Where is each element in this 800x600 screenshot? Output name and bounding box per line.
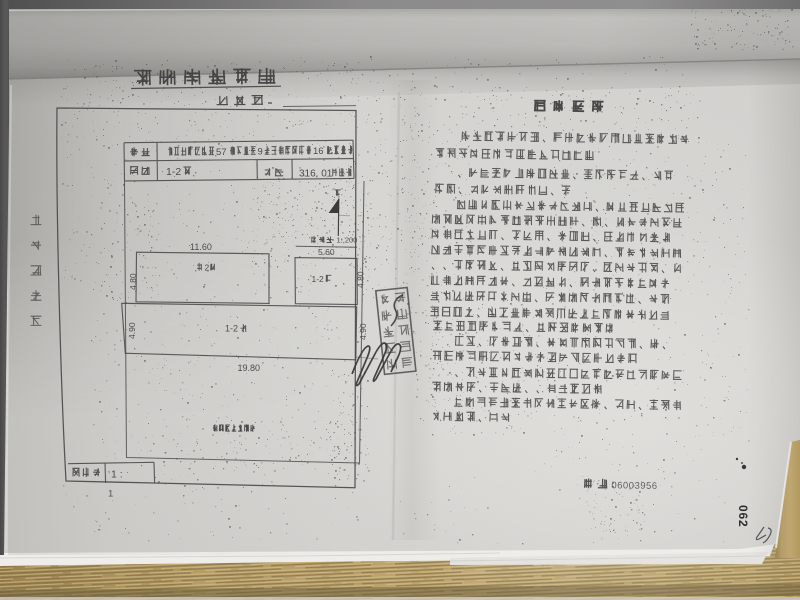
svg-text:11.60: 11.60 [190, 242, 212, 252]
svg-text:19.80: 19.80 [238, 363, 261, 373]
svg-text:4.80: 4.80 [356, 271, 366, 288]
svg-text:316. 01: 316. 01 [299, 169, 333, 180]
svg-text:1-2: 1-2 [166, 166, 181, 178]
svg-text:16: 16 [313, 146, 324, 157]
svg-text:1: 1 [108, 489, 113, 500]
svg-text:1: 200: 1: 200 [337, 236, 358, 245]
svg-text:1-2: 1-2 [225, 324, 238, 334]
svg-text:1 :: 1 : [111, 469, 123, 481]
svg-text:57: 57 [216, 147, 227, 158]
svg-text:4.80: 4.80 [128, 273, 138, 290]
svg-text:062: 062 [736, 505, 750, 527]
svg-text:9: 9 [258, 147, 263, 158]
svg-text:1-2: 1-2 [312, 274, 325, 284]
svg-text:5.60: 5.60 [318, 247, 335, 257]
